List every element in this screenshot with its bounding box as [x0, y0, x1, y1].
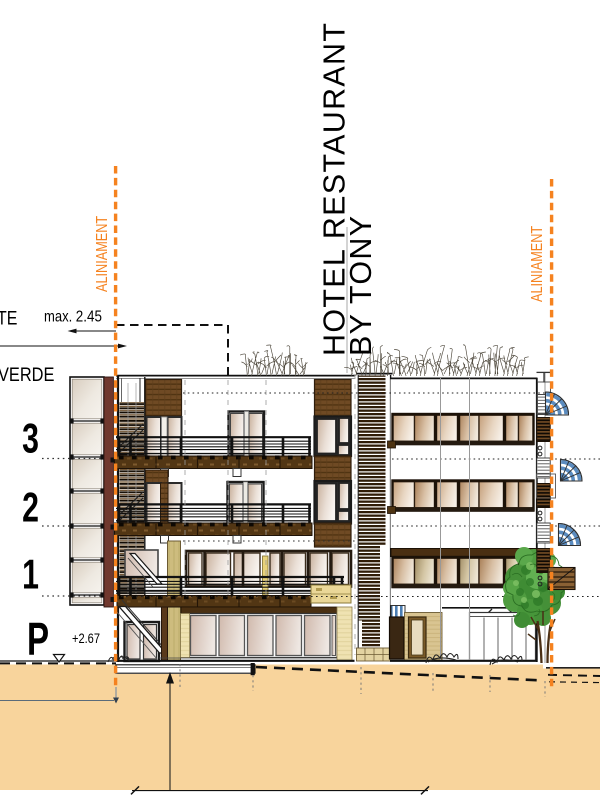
svg-text:1: 1 — [22, 551, 39, 598]
svg-text:2: 2 — [22, 484, 39, 531]
svg-text:VERDE: VERDE — [0, 364, 54, 386]
svg-text:ALINIAMENT: ALINIAMENT — [94, 216, 111, 292]
svg-text:ALINIAMENT: ALINIAMENT — [529, 226, 546, 302]
svg-text:P: P — [27, 615, 49, 665]
svg-text:+2.67: +2.67 — [72, 631, 100, 646]
svg-text:TE: TE — [0, 307, 17, 329]
svg-text:3: 3 — [22, 415, 39, 462]
svg-text:max. 2.45: max. 2.45 — [44, 309, 102, 326]
svg-text:BY TONY: BY TONY — [344, 215, 378, 356]
